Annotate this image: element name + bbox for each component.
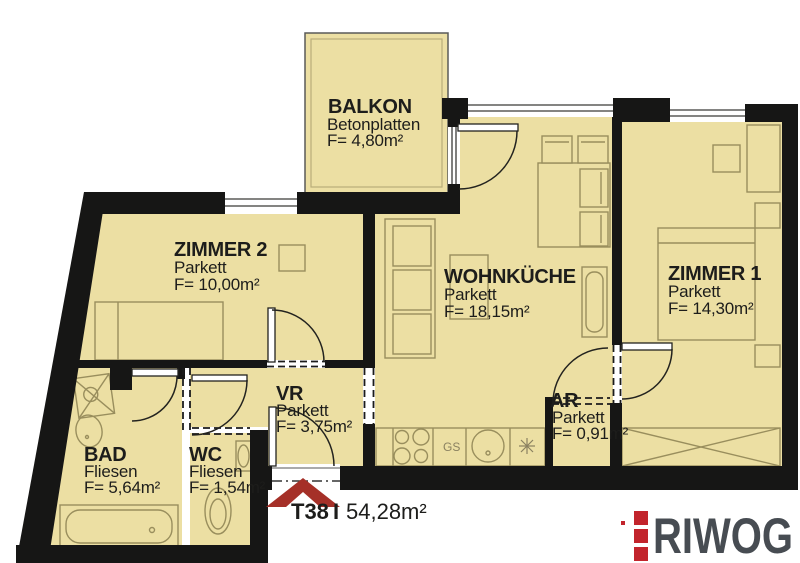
room-area: F= 10,00m² <box>174 275 260 294</box>
room-area: F= 3,75m² <box>276 417 353 436</box>
riwog-logo: RIWOG <box>621 508 793 563</box>
room-area: F= 18,15m² <box>444 302 530 321</box>
chair-icon <box>578 136 608 163</box>
light-point-icon <box>519 438 535 454</box>
logo-dot-icon <box>621 521 625 525</box>
floor-plan-svg: GS <box>0 0 800 563</box>
chair-icon <box>542 136 572 163</box>
room-area: F= 14,30m² <box>668 299 754 318</box>
kitchen-counter: GS <box>376 428 545 466</box>
window-zimmer1 <box>670 104 745 122</box>
unit-total-area: 54,28m² <box>346 499 427 524</box>
room-area: F= 0,91m² <box>552 424 629 443</box>
balcony-door-frame <box>448 127 460 184</box>
floor-plan: GS <box>0 0 800 563</box>
unit-label: T38 I 54,28m² <box>291 499 427 524</box>
unit-separator: I <box>333 499 339 524</box>
window-zimmer2 <box>225 192 297 214</box>
logo-text: RIWOG <box>653 508 793 563</box>
room-area: F= 1,54m² <box>189 478 266 497</box>
chair-icon <box>580 212 608 246</box>
room-area: F= 5,64m² <box>84 478 161 497</box>
unit-number: T38 <box>291 499 329 524</box>
room-area: F= 4,80m² <box>327 131 404 150</box>
window-wohnkueche <box>468 98 613 117</box>
logo-squares-icon <box>634 511 648 561</box>
chair-icon <box>580 169 608 207</box>
dishwasher-label: GS <box>443 440 460 454</box>
